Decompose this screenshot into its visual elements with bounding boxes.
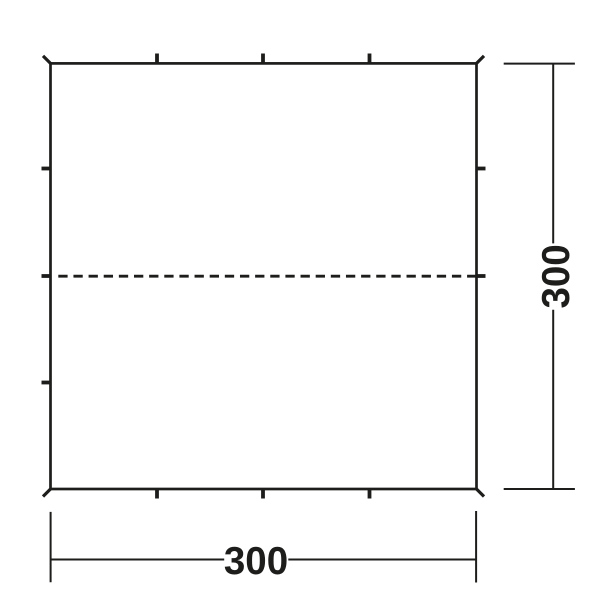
svg-text:300: 300 <box>535 244 578 308</box>
svg-text:300: 300 <box>224 540 288 583</box>
